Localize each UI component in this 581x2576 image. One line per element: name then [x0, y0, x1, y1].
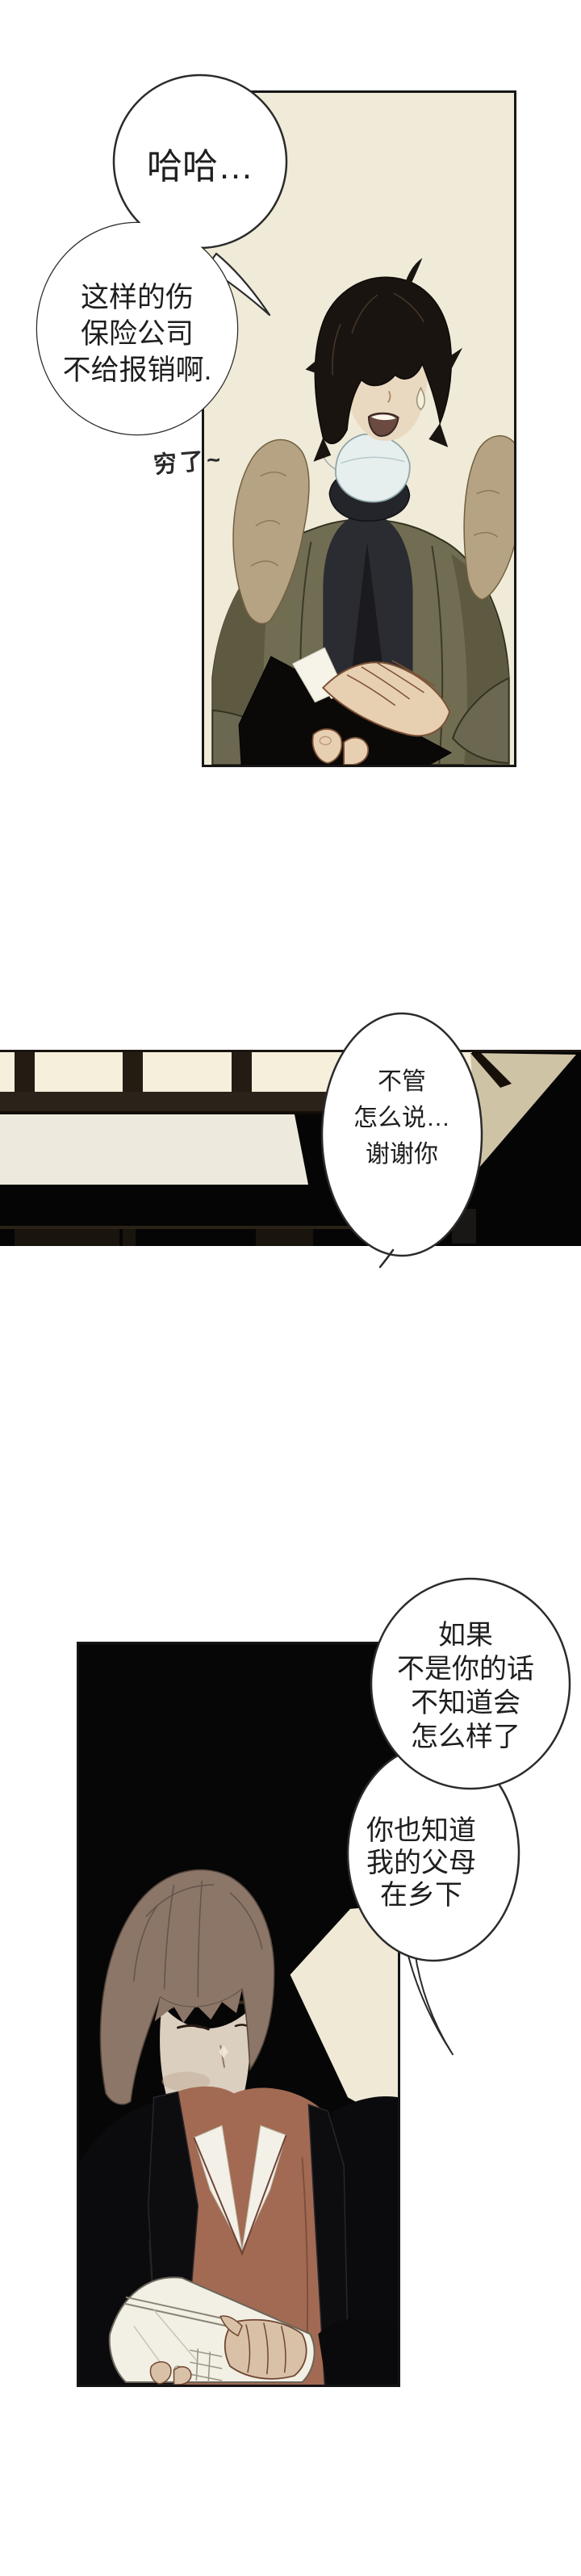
text-line: 这样的伤	[32, 279, 242, 316]
text-line: 不知道会	[365, 1686, 566, 1720]
text-line: 哈哈…	[103, 147, 297, 188]
speech-bubble-3-text: 不管 怎么说… 谢谢你	[328, 1064, 476, 1173]
comic-page: 穷了~ 哈哈… 这样的伤 保险公司 不给报销啊.	[0, 0, 581, 2576]
panel-2-artwork	[0, 1050, 581, 1246]
text-line: 不管	[328, 1064, 476, 1100]
speech-bubble-5-text: 你也知道 我的父母 在乡下	[332, 1815, 510, 1911]
panel-2	[0, 1050, 581, 1246]
text-line: 不是你的话	[365, 1652, 566, 1686]
text-line: 在乡下	[332, 1879, 510, 1911]
text-line: 你也知道	[332, 1815, 510, 1847]
text-line: 怎么样了	[365, 1720, 566, 1754]
text-line: 我的父母	[332, 1847, 510, 1879]
text-line: 谢谢你	[328, 1136, 476, 1173]
text-line: 怎么说…	[328, 1100, 476, 1136]
speech-bubble-2-text: 这样的伤 保险公司 不给报销啊.	[32, 279, 242, 388]
text-line: 如果	[365, 1618, 566, 1652]
text-line: 保险公司	[32, 316, 242, 352]
text-line: 不给报销啊.	[32, 352, 242, 388]
speech-bubble-4-text: 如果 不是你的话 不知道会 怎么样了	[365, 1618, 566, 1754]
speech-bubble-1-text: 哈哈…	[103, 147, 297, 188]
bubble-5-tail	[408, 1951, 453, 2054]
